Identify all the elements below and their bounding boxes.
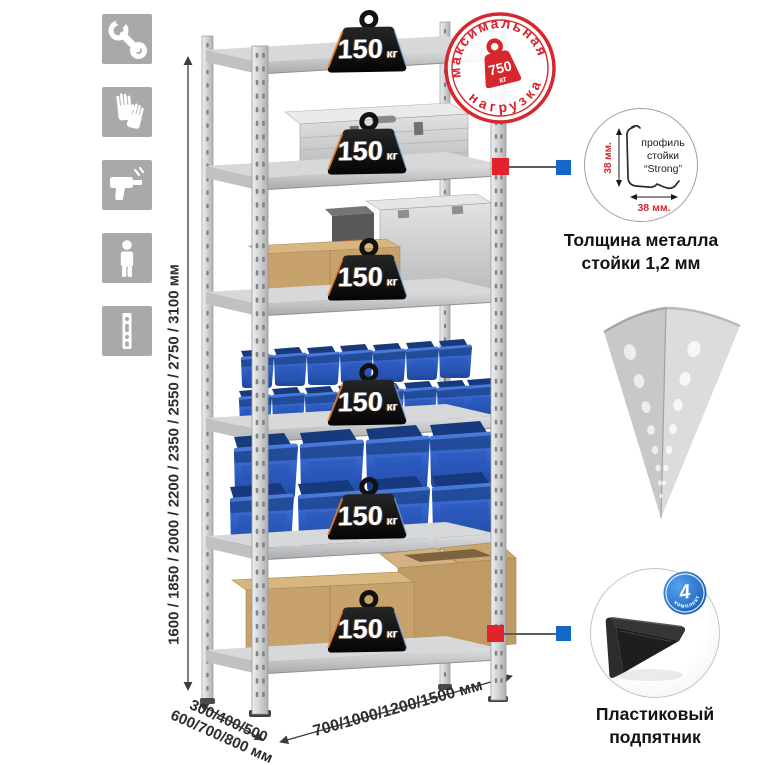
- shelf-load-badge: 150кг: [319, 237, 417, 305]
- gloves-icon: [102, 87, 152, 137]
- foot-detail-circle: 4 в комплекте: [590, 568, 720, 698]
- rack-post-icon: [102, 306, 152, 356]
- profile-detail-circle: 38 мм. 38 мм. профиль стойки “Strong”: [584, 108, 698, 222]
- shelf-load-badge: 150кг: [319, 362, 417, 430]
- product-infographic: 1600 / 1850 / 2000 / 2200 / 2350 / 2550 …: [0, 0, 765, 765]
- shelf-load-badge: 150кг: [319, 589, 417, 657]
- drill-icon: [102, 160, 152, 210]
- shelf-load-badge: 150кг: [319, 111, 417, 179]
- svg-text:стойки: стойки: [647, 150, 679, 162]
- height-dimension-label: 1600 / 1850 / 2000 / 2200 / 2350 / 2550 …: [166, 185, 183, 725]
- foot-caption: Пластиковый подпятник: [570, 703, 740, 749]
- profile-caption: Толщина металла стойки 1,2 мм: [553, 229, 729, 275]
- callout-marker-red-bottom: [487, 625, 504, 642]
- callout-line-bottom: [502, 633, 558, 635]
- svg-text:38 мм.: 38 мм.: [603, 142, 614, 174]
- person-icon: [102, 233, 152, 283]
- callout-marker-blue-bottom: [556, 626, 571, 641]
- max-load-stamp: максимальная нагрузка 750 кг: [441, 9, 559, 132]
- svg-text:38 мм.: 38 мм.: [637, 202, 670, 214]
- wrench-icon: [102, 14, 152, 64]
- callout-marker-red-top: [492, 158, 509, 175]
- callout-marker-blue-top: [556, 160, 571, 175]
- count-badge: 4 в комплекте: [662, 570, 708, 616]
- callout-line-top: [505, 166, 559, 168]
- angle-post-detail: [604, 308, 740, 518]
- shelf-load-badge: 150кг: [319, 476, 417, 544]
- shelf-load-badge: 150кг: [319, 9, 417, 77]
- svg-text:“Strong”: “Strong”: [644, 163, 682, 175]
- svg-text:профиль: профиль: [641, 137, 685, 149]
